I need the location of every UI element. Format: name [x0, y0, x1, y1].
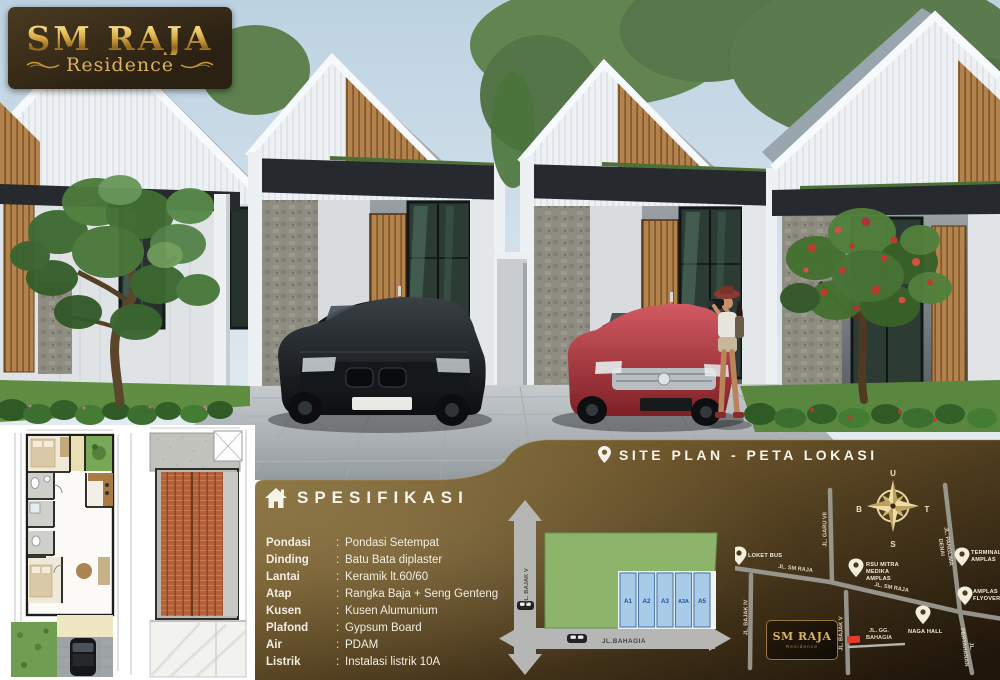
spec-colon: :	[336, 554, 345, 566]
flourish-left-icon	[26, 60, 60, 70]
lot-label: A1	[624, 598, 632, 605]
floor-plans	[0, 425, 255, 680]
pin-rsu	[849, 559, 864, 578]
lot-label: A5	[698, 598, 706, 605]
spec-value: PDAM	[345, 639, 378, 651]
spec-label: Plafond	[266, 622, 336, 634]
spec-label: Kusen	[266, 605, 336, 617]
pin-loket-bus	[735, 547, 747, 566]
pin-label-rsu: RSU MITRA MEDIKA AMPLAS	[866, 562, 913, 583]
spec-label: Listrik	[266, 656, 336, 668]
pin-label-naga-hall: NAGA HALL	[908, 629, 943, 636]
spec-colon: :	[336, 639, 345, 651]
garden	[11, 622, 57, 677]
spesifikasi-header: SPESIFIKASI	[264, 487, 469, 509]
siteplan-road-horizontal-label: JL.BAHAGIA	[602, 638, 646, 645]
car-icon	[567, 634, 587, 643]
pin-label-loket-bus: LOKET BUS	[748, 553, 782, 560]
siteplan-header: SITE PLAN - PETA LOKASI	[598, 446, 878, 463]
compass-south: S	[890, 540, 896, 549]
spec-label: Atap	[266, 588, 336, 600]
lot-label: A3A	[678, 599, 689, 605]
siteplan-road-vertical-label: JL. BAJAK V	[524, 566, 530, 606]
spesifikasi-list: Pondasi:Pondasi Setempat Dinding:Batu Ba…	[266, 537, 518, 668]
flyer-poster: SPESIFIKASI Pondasi:Pondasi Setempat Din…	[0, 0, 1000, 680]
flourish-right-icon	[180, 60, 214, 70]
pin-label-terminal: TERMINAL AMPLAS	[971, 550, 1000, 564]
compass-rose: U T S B	[856, 469, 929, 549]
map-logo-subtitle: Residence	[786, 644, 818, 649]
spec-label: Lantai	[266, 571, 336, 583]
spec-row: Dinding:Batu Bata diplaster	[266, 554, 518, 566]
spec-value: Rangka Baja + Seng Genteng	[345, 588, 498, 600]
pin-terminal	[955, 548, 970, 567]
porch	[57, 615, 113, 637]
map-road-small	[848, 644, 905, 647]
street-label-gg-bahagia: JL. GG. BAHAGIA	[862, 628, 896, 642]
spec-row: Lantai:Keramik lt.60/60	[266, 571, 518, 583]
spec-label: Dinding	[266, 554, 336, 566]
spec-colon: :	[336, 571, 345, 583]
brand-title: SM RAJA	[26, 22, 213, 55]
spec-row: Kusen:Kusen Alumunium	[266, 605, 518, 617]
spec-row: Air:PDAM	[266, 639, 518, 651]
residence-location-marker	[847, 636, 860, 644]
brand-subtitle: Residence	[66, 56, 174, 75]
spesifikasi-title: SPESIFIKASI	[297, 488, 469, 508]
spec-row: Listrik:Instalasi listrik 10A	[266, 656, 518, 668]
compass-north: U	[890, 469, 896, 478]
street-label-bajak5: JL. BAJAK V	[839, 613, 846, 653]
spec-value: Kusen Alumunium	[345, 605, 438, 617]
street-label-bajak4: JL. BAJAK IV	[744, 597, 751, 637]
plan-driveway	[57, 637, 113, 677]
house-icon	[264, 487, 288, 509]
brand-subtitle-row: Residence	[26, 56, 214, 75]
spec-value: Pondasi Setempat	[345, 537, 439, 549]
siteplan-title: SITE PLAN - PETA LOKASI	[619, 447, 878, 463]
pin-naga-hall	[916, 606, 931, 625]
spec-value: Instalasi listrik 10A	[345, 656, 440, 668]
compass-west: B	[856, 505, 862, 514]
pin-label-flyover: AMPLAS FLYOVER	[973, 589, 1000, 603]
spec-row: Atap:Rangka Baja + Seng Genteng	[266, 588, 518, 600]
spec-colon: :	[336, 588, 345, 600]
map-logo-badge: SM RAJA Residence	[766, 620, 838, 660]
street-label-garu: JL. GARU VII	[823, 509, 830, 549]
spec-label: Pondasi	[266, 537, 336, 549]
spec-label: Air	[266, 639, 336, 651]
spec-row: Plafond:Gypsum Board	[266, 622, 518, 634]
spec-value: Batu Bata diplaster	[345, 554, 442, 566]
spec-value: Gypsum Board	[345, 622, 422, 634]
map-logo-title: SM RAJA	[773, 631, 832, 642]
compass-east: T	[925, 505, 930, 514]
lot-label: A3	[661, 598, 669, 605]
spec-colon: :	[336, 656, 345, 668]
spec-colon: :	[336, 605, 345, 617]
siteplan-diagram: A1 A2 A3 A3A A5 JL.BAHAGIA	[497, 497, 733, 678]
spec-colon: :	[336, 622, 345, 634]
roof-plan-unit	[150, 431, 246, 677]
spec-colon: :	[336, 537, 345, 549]
brand-badge: SM RAJA Residence	[8, 7, 232, 89]
spec-value: Keramik lt.60/60	[345, 571, 428, 583]
lot-label: A2	[643, 598, 651, 605]
location-pin-icon	[598, 446, 611, 463]
spec-row: Pondasi:Pondasi Setempat	[266, 537, 518, 549]
floor-plan-unit	[11, 435, 113, 677]
wood-door	[932, 226, 966, 382]
